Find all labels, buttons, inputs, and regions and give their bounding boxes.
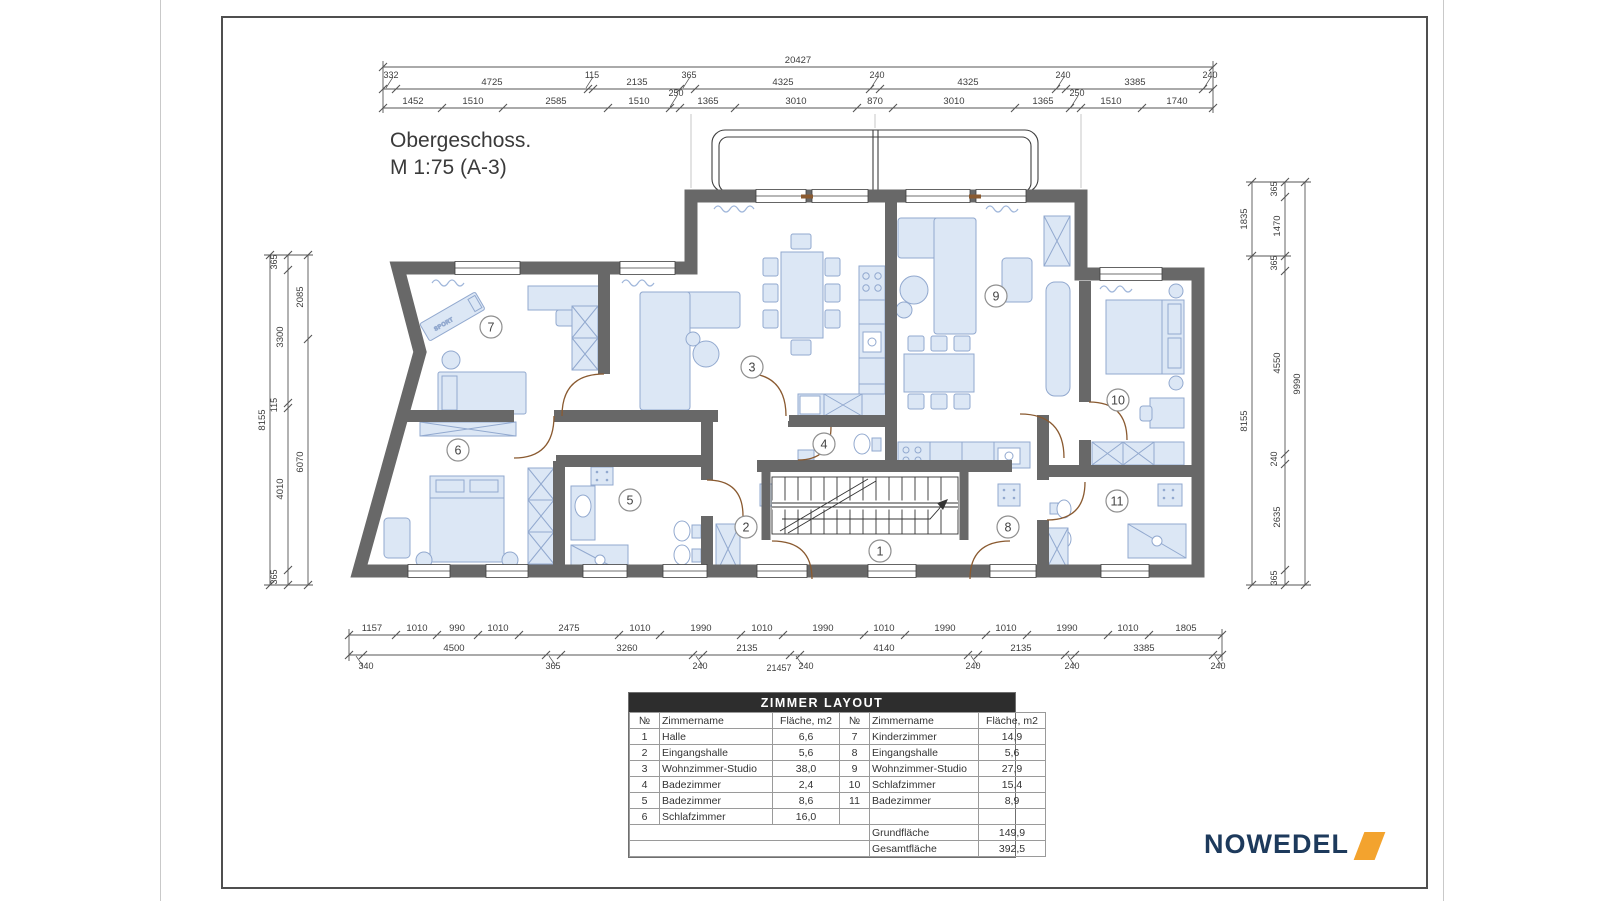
dim-label: 2135 [736,643,757,654]
dim-label: 365 [545,661,560,671]
table-cell: 8 [840,745,870,761]
table-cell: 6,6 [773,729,840,745]
dim-label: 115 [269,398,279,412]
dim-label: 3300 [275,326,286,347]
doormat [998,484,1020,506]
dim-label: 1470 [1272,215,1283,236]
dim-label: 365 [1269,181,1279,196]
table-cell: 2,4 [773,777,840,793]
dim-label: 240 [692,661,707,671]
table-footer-label: Gesamtfläche [870,841,979,857]
dim-label: 340 [358,661,373,671]
room-number-4: 4 [813,433,835,455]
table-cell: Wohnzimmer-Studio [870,761,979,777]
dining-table [781,252,823,338]
dim-label: 4725 [481,77,502,88]
room-layout-table: ZIMMER LAYOUT № Zimmername Fläche, m2 № … [628,692,1016,858]
chair [1140,406,1152,421]
dim-label: 4550 [1272,352,1283,373]
table-footer-value: 392,5 [979,841,1046,857]
logo-text: NOWEDEL [1204,829,1349,860]
table-cell: 14,9 [979,729,1046,745]
dim-label: 332 [383,70,398,80]
room-number-10: 10 [1107,389,1129,411]
dim-label: 365 [1269,570,1279,585]
svg-text:10: 10 [1111,394,1125,408]
dim-label: 8155 [257,409,268,430]
washing-machine [1158,484,1182,506]
treadmill: SPORT [420,292,485,341]
room-number-9: 9 [985,285,1007,307]
room-number-2: 2 [735,516,757,538]
table-cell: Schlafzimmer [870,777,979,793]
dim-label: 1510 [628,96,649,107]
dim-label: 1990 [690,623,711,634]
dim-label: 365 [1269,255,1279,270]
dim-label: 3010 [943,96,964,107]
dim-label: 3385 [1124,77,1145,88]
dim-label: 21457 [766,663,791,673]
dim-label: 1990 [812,623,833,634]
dim-label: 2635 [1272,506,1283,527]
dim-label: 1990 [1056,623,1077,634]
table-cell: 5,6 [773,745,840,761]
dim-label: 2585 [545,96,566,107]
table-cell: Badezimmer [870,793,979,809]
dim-label: 3385 [1133,643,1154,654]
door-arc [514,416,554,458]
table-footer-value: 149,9 [979,825,1046,841]
dim-label: 2135 [626,77,647,88]
table-row: 5 Badezimmer 8,6 11 Badezimmer 8,9 [630,793,1046,809]
dim-label: 240 [1064,661,1079,671]
table-footer-label: Grundfläche [870,825,979,841]
room-number-6: 6 [447,439,469,461]
table-cell: 6 [630,809,660,825]
table-cell [870,809,979,825]
toilet [692,525,701,538]
table-cell-empty [630,825,870,841]
table-header: Zimmername [870,713,979,729]
table-row: 3 Wohnzimmer-Studio 38,0 9 Wohnzimmer-St… [630,761,1046,777]
dim-label: 365 [681,70,696,80]
dim-label: 870 [867,96,883,107]
table-cell: 5 [630,793,660,809]
door-arc [562,374,604,416]
table-cell: 8,6 [773,793,840,809]
dim-label: 1835 [1239,208,1250,229]
table-cell: 10 [840,777,870,793]
dim-label: 250 [1069,88,1084,98]
table-cell: 3 [630,761,660,777]
table-cell: 27,9 [979,761,1046,777]
cabinet [1046,282,1070,396]
door-arc [743,373,786,416]
dim-label: 1740 [1166,96,1187,107]
table-cell: 1 [630,729,660,745]
svg-text:8: 8 [1005,521,1012,535]
dim-label: 1010 [751,623,772,634]
table-cell: 16,0 [773,809,840,825]
dim-label: 990 [449,623,465,634]
dim-label: 365 [269,254,279,269]
dim-label: 2085 [295,286,306,307]
dim-label: 240 [869,70,884,80]
armchair [384,518,410,558]
table-cell: 4 [630,777,660,793]
balcony [712,130,1038,192]
dim-label: 1010 [995,623,1016,634]
table-cell: Eingangshalle [660,745,773,761]
room-number-7: 7 [480,316,502,338]
dim-label: 240 [1210,661,1225,671]
svg-text:5: 5 [627,494,634,508]
dim-label: 240 [965,661,980,671]
table-header: Fläche, m2 [979,713,1046,729]
dim-label: 9990 [1292,373,1303,394]
room-number-11: 11 [1106,490,1128,512]
dim-label: 240 [1269,451,1279,466]
room-number-8: 8 [997,516,1019,538]
dim-label: 6070 [295,451,306,472]
dim-label: 240 [1202,70,1217,80]
dining-table [904,354,974,392]
dim-label: 1365 [1032,96,1053,107]
dim-label: 1990 [934,623,955,634]
svg-text:9: 9 [993,290,1000,304]
room-number-3: 3 [741,356,763,378]
svg-text:6: 6 [455,444,462,458]
table-cell [840,809,870,825]
desk [1150,398,1184,428]
dim-label: 4500 [443,643,464,654]
dim-label: 240 [1055,70,1070,80]
door-arc [707,480,743,516]
dim-label: 1010 [487,623,508,634]
dim-label: 1157 [362,623,382,634]
room-number-1: 1 [869,540,891,562]
table-header: № [840,713,870,729]
table-cell: 15,4 [979,777,1046,793]
table-cell: 2 [630,745,660,761]
dim-label: 4325 [772,77,793,88]
washing-machine [591,467,613,485]
dim-label: 250 [668,88,683,98]
dim-label: 115 [585,70,599,80]
table-cell [979,809,1046,825]
table-title: ZIMMER LAYOUT [629,693,1015,712]
table-header: Fläche, m2 [773,713,840,729]
dim-label: 20427 [785,55,811,66]
table-cell: Wohnzimmer-Studio [660,761,773,777]
table-cell: Halle [660,729,773,745]
dim-label: 8155 [1239,410,1250,431]
table-cell: Badezimmer [660,777,773,793]
dim-label: 3260 [616,643,637,654]
dim-label: 1510 [1100,96,1121,107]
dim-label: 1010 [406,623,427,634]
table-cell: Badezimmer [660,793,773,809]
toilet [872,438,881,451]
dim-label: 240 [798,661,813,671]
table-header: № [630,713,660,729]
bidet [692,549,701,562]
table-cell: Schlafzimmer [660,809,773,825]
dim-label: 4010 [275,478,286,499]
svg-text:7: 7 [488,321,495,335]
svg-text:11: 11 [1111,495,1124,509]
svg-text:3: 3 [749,361,756,375]
dim-label: 1010 [1117,623,1138,634]
stool [442,351,460,369]
table-header: Zimmername [660,713,773,729]
table-footer-row: Gesamtfläche 392,5 [630,841,1046,857]
svg-text:2: 2 [743,521,750,535]
table-cell: 9 [840,761,870,777]
table-cell: Eingangshalle [870,745,979,761]
dim-label: 4325 [957,77,978,88]
dim-label: 1010 [873,623,894,634]
dim-label: 1805 [1175,623,1196,634]
dim-label: 1365 [697,96,718,107]
table-cell: Kinderzimmer [870,729,979,745]
table-cell: 5,6 [979,745,1046,761]
dim-label: 1510 [462,96,483,107]
dim-label: 4140 [873,643,894,654]
table-cell-empty [630,841,870,857]
table-cell: 8,9 [979,793,1046,809]
table-footer-row: Grundfläche 149,9 [630,825,1046,841]
table-row: 2 Eingangshalle 5,6 8 Eingangshalle 5,6 [630,745,1046,761]
stairs [772,477,958,534]
table-row: 6 Schlafzimmer 16,0 [630,809,1046,825]
company-logo: NOWEDEL [1204,829,1380,860]
dim-label: 365 [269,569,279,584]
table-row: 4 Badezimmer 2,4 10 Schlafzimmer 15,4 [630,777,1046,793]
room-number-5: 5 [619,489,641,511]
svg-text:1: 1 [877,545,884,559]
dim-label: 2135 [1010,643,1031,654]
svg-text:4: 4 [821,438,828,452]
table-row: 1 Halle 6,6 7 Kinderzimmer 14,9 [630,729,1046,745]
table-cell: 38,0 [773,761,840,777]
dim-label: 3010 [785,96,806,107]
dim-label: 1452 [402,96,423,107]
coffee-table [900,276,928,304]
table-cell: 11 [840,793,870,809]
table-header-row: № Zimmername Fläche, m2 № Zimmername Flä… [630,713,1046,729]
dim-label: 2475 [558,623,579,634]
table-cell: 7 [840,729,870,745]
dim-label: 1010 [629,623,650,634]
